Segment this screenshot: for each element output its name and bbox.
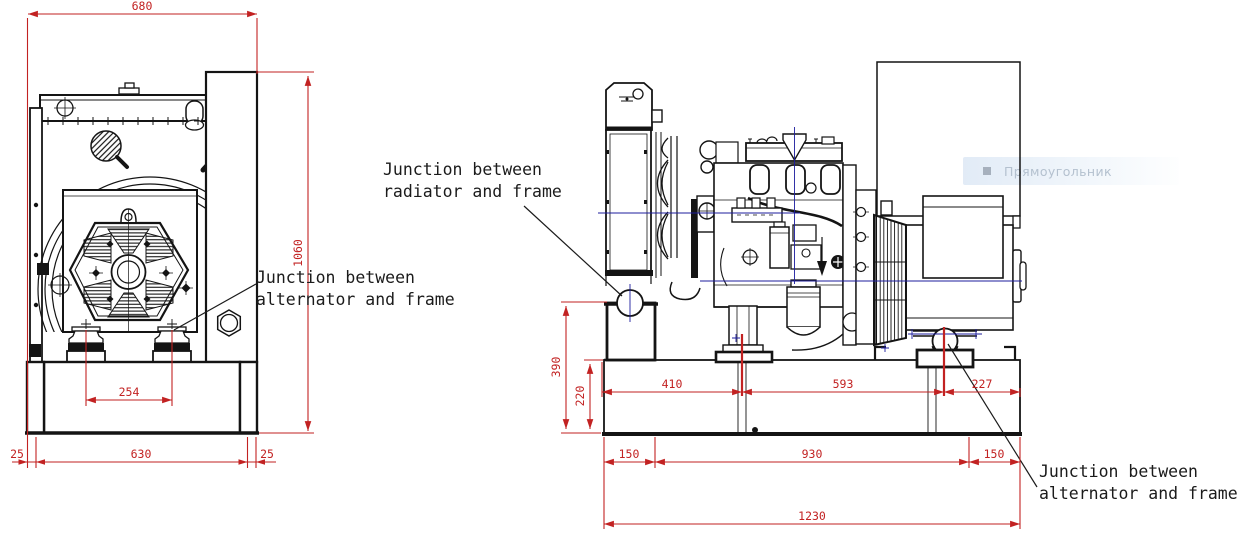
front-view-drawing (25, 72, 262, 433)
dim-side-engine-to-alternator-mount: 593 (833, 377, 854, 391)
dim-front-mount-spacing: 254 (119, 385, 140, 399)
dim-front-right-overhang: 25 (260, 447, 274, 461)
terminal-box (923, 196, 1003, 278)
drawing-canvas: Прямоугольник (0, 0, 1239, 533)
dim-side-junction-height: 390 (549, 357, 563, 378)
canopy-box (877, 62, 1020, 216)
annotation-alternator-frame-junction-side: Junction between alternator and frame (1039, 461, 1238, 505)
engine-mount-pedestal (716, 352, 772, 362)
dim-front-frame-width: 630 (131, 447, 152, 461)
alternator-grille-front (48, 190, 197, 332)
dim-side-right-overhang: 150 (984, 447, 1005, 461)
dim-side-alternator-mount-to-end: 227 (972, 377, 993, 391)
alternator-grille-side (874, 215, 906, 345)
engineering-drawing-svg: 680 1060 254 25 630 25 390 220 410 593 2… (0, 0, 1239, 533)
dim-side-mount-span: 930 (802, 447, 823, 461)
dim-side-overall-length: 1230 (798, 509, 826, 523)
base-frame-front (25, 362, 259, 433)
dim-side-left-overhang: 150 (619, 447, 640, 461)
annotation-radiator-frame-junction: Junction between radiator and frame (383, 159, 562, 203)
engine-side (691, 134, 861, 352)
dim-front-overall-height: 1060 (291, 239, 305, 267)
radiator-cap (119, 88, 139, 94)
radiator-side (605, 83, 662, 286)
alternator-side (853, 190, 1026, 367)
dim-side-frame-height: 220 (573, 386, 587, 407)
enclosure-column (206, 72, 257, 362)
dim-side-frame-to-engine-mount: 410 (662, 377, 683, 391)
dim-front-left-overhang: 25 (10, 447, 24, 461)
annotation-alternator-frame-junction-front: Junction between alternator and frame (256, 267, 455, 311)
dim-front-overall-width: 680 (132, 0, 153, 13)
radiator-support (604, 290, 658, 360)
